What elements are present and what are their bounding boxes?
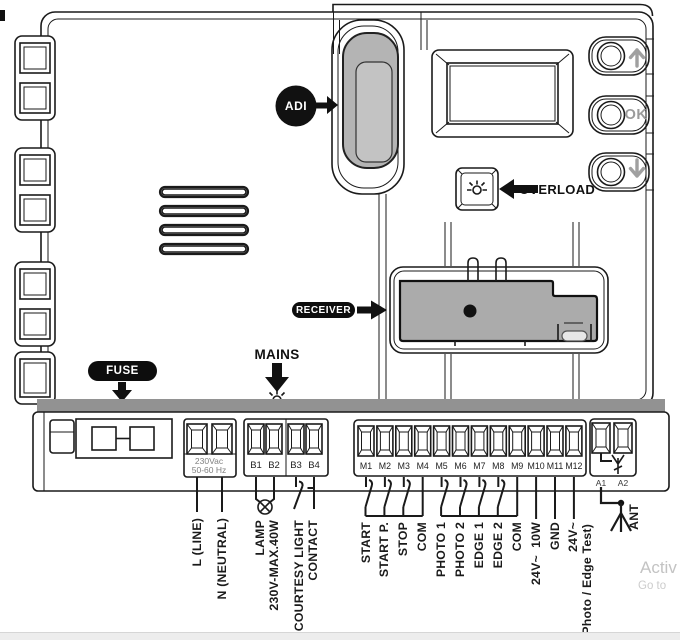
terminal-label-a1: A1 <box>596 478 606 488</box>
terminal-label-a2: A2 <box>618 478 628 488</box>
wire-label-photo-edge-test: (Photo / Edge Test) <box>581 524 594 639</box>
down-button <box>589 153 649 191</box>
adi-arrow-icon <box>316 96 338 114</box>
wire-label-neutral: N (NEUTRAL) <box>216 518 229 599</box>
vent-slots <box>160 187 248 254</box>
power-rating-line2: 50-60 Hz <box>192 465 227 475</box>
terminal-label-b1: B1 <box>250 460 262 471</box>
receiver-button-icon <box>464 305 477 318</box>
wire-label-photo2: PHOTO 2 <box>454 522 467 577</box>
down-arrow-icon <box>631 160 644 176</box>
mains-label: MAINS <box>250 347 304 362</box>
wire-label-24v: 24V~ <box>567 522 580 552</box>
control-board-diagram: FUSE RECEIVER MAINS OVERLOAD ADI OK 230V… <box>0 0 680 640</box>
terminal-label-m11: M11 <box>547 461 563 471</box>
wire-label-gnd: GND <box>549 522 562 550</box>
wire-label-start: START <box>360 522 373 563</box>
wire-label-lamp2: 230V-MAX.40W <box>268 520 281 611</box>
wire-label-edge1: EDGE 1 <box>473 522 486 568</box>
terminal-label-m6: M6 <box>454 461 466 471</box>
terminal-label-m1: M1 <box>360 461 372 471</box>
terminal-label-m12: M12 <box>565 461 582 471</box>
wire-label-ant: ANT <box>628 504 641 530</box>
ok-button-label: OK <box>621 107 651 123</box>
terminal-label-m10: M10 <box>528 461 545 471</box>
terminal-label-m2: M2 <box>379 461 391 471</box>
up-arrow-icon <box>631 50 644 66</box>
overload-led-icon <box>467 181 487 195</box>
wire-label-photo1: PHOTO 1 <box>435 522 448 577</box>
left-clips <box>15 36 55 404</box>
mains-arrow-icon <box>265 363 289 392</box>
wire-label-start-p: START P. <box>378 522 391 577</box>
wire-label-courtesy1: COURTESY LIGHT <box>293 520 306 631</box>
terminal-label-b2: B2 <box>268 460 280 471</box>
wire-label-stop: STOP <box>397 522 410 556</box>
overload-label: OVERLOAD <box>519 182 595 197</box>
terminal-label-b3: B3 <box>290 460 302 471</box>
receiver-module <box>357 258 608 353</box>
mains-indicator <box>265 363 289 404</box>
wire-label-24v-10w: 24V~ 10W <box>530 522 543 585</box>
wire-label-lamp1: LAMP <box>254 520 267 556</box>
up-button <box>589 37 649 75</box>
terminal-label-b4: B4 <box>308 460 320 471</box>
terminal-label-m9: M9 <box>511 461 523 471</box>
watermark-line2: Go to <box>638 580 666 592</box>
receiver-label: RECEIVER <box>292 302 355 318</box>
terminal-label-m7: M7 <box>473 461 485 471</box>
receiver-label-text: RECEIVER <box>296 305 351 316</box>
wire-label-courtesy2: CONTACT <box>307 520 320 581</box>
wire-label-com2: COM <box>511 522 524 551</box>
watermark-line1: Activ <box>640 558 677 578</box>
display-window <box>432 50 573 137</box>
bottom-page-band <box>0 632 680 640</box>
wire-label-line: L (LINE) <box>191 518 204 567</box>
terminal-label-m5: M5 <box>435 461 447 471</box>
wire-label-edge2: EDGE 2 <box>492 522 505 568</box>
adi-logo-text: ADI <box>285 99 307 113</box>
wire-label-com1: COM <box>416 522 429 551</box>
fuse-label: FUSE <box>88 361 157 381</box>
terminal-label-m8: M8 <box>492 461 504 471</box>
receiver-arrow-icon <box>357 301 387 320</box>
fuse-label-text: FUSE <box>106 365 139 377</box>
lamp-icon <box>261 503 270 512</box>
terminal-label-m4: M4 <box>417 461 429 471</box>
terminal-label-m3: M3 <box>398 461 410 471</box>
